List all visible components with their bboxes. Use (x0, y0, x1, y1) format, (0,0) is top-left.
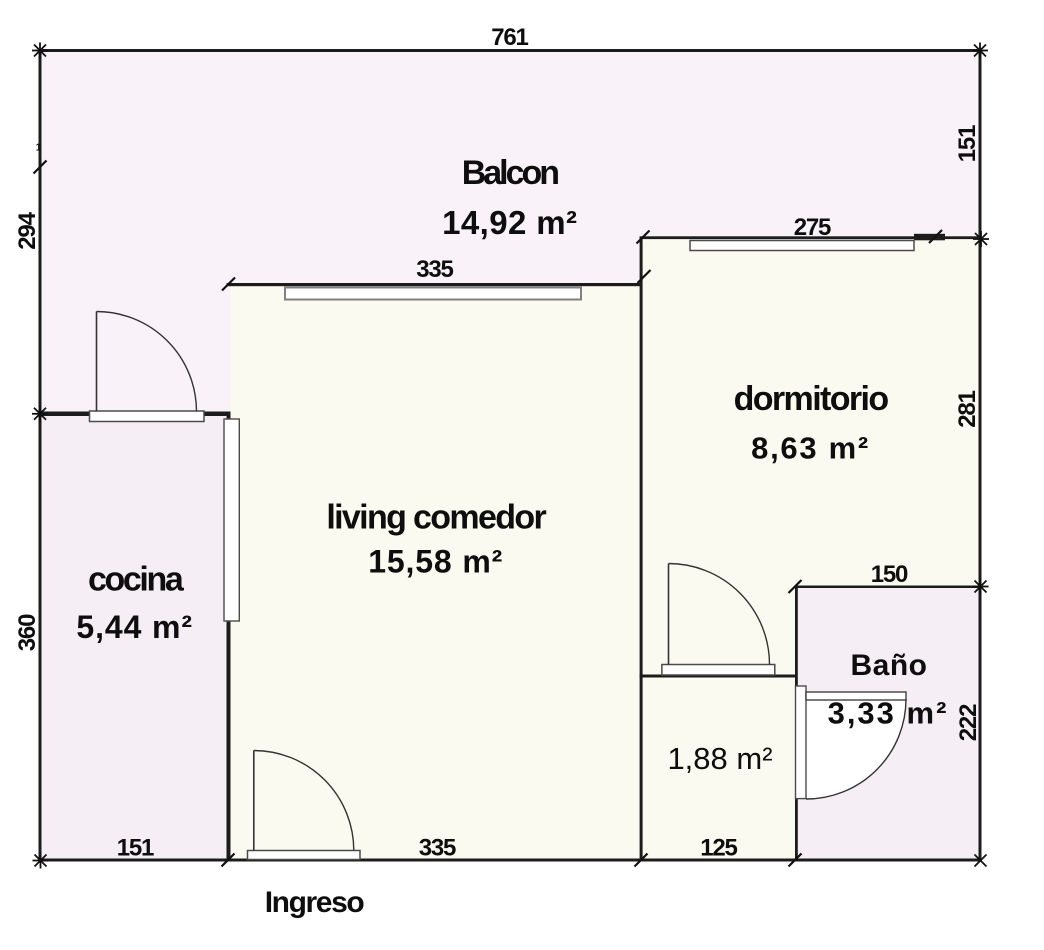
svg-text:3,33 m²: 3,33 m² (828, 696, 949, 731)
svg-text:360: 360 (14, 614, 41, 651)
svg-text:living comedor: living comedor (326, 498, 546, 536)
svg-text:5,44 m²: 5,44 m² (76, 609, 193, 645)
svg-text:Ingreso: Ingreso (265, 886, 365, 919)
svg-text:125: 125 (700, 835, 737, 862)
svg-text:275: 275 (794, 214, 831, 241)
svg-text:151: 151 (117, 835, 154, 862)
svg-text:1: 1 (36, 143, 42, 154)
svg-text:222: 222 (955, 704, 982, 741)
svg-text:cocina: cocina (88, 561, 185, 599)
svg-text:1,88 m²: 1,88 m² (667, 741, 772, 776)
svg-text:Baño: Baño (851, 649, 928, 682)
svg-text:8,63 m²: 8,63 m² (751, 431, 870, 466)
svg-text:761: 761 (491, 24, 528, 51)
svg-text:281: 281 (954, 390, 981, 427)
svg-text:335: 335 (419, 835, 456, 862)
svg-text:14,92 m²: 14,92 m² (442, 204, 577, 241)
svg-text:Balcon: Balcon (462, 154, 559, 192)
svg-text:15,58 m²: 15,58 m² (368, 544, 503, 580)
svg-text:335: 335 (416, 256, 453, 283)
svg-text:151: 151 (954, 125, 981, 162)
svg-text:dormitorio: dormitorio (734, 380, 889, 418)
svg-text:294: 294 (14, 211, 41, 249)
svg-text:150: 150 (871, 561, 908, 588)
